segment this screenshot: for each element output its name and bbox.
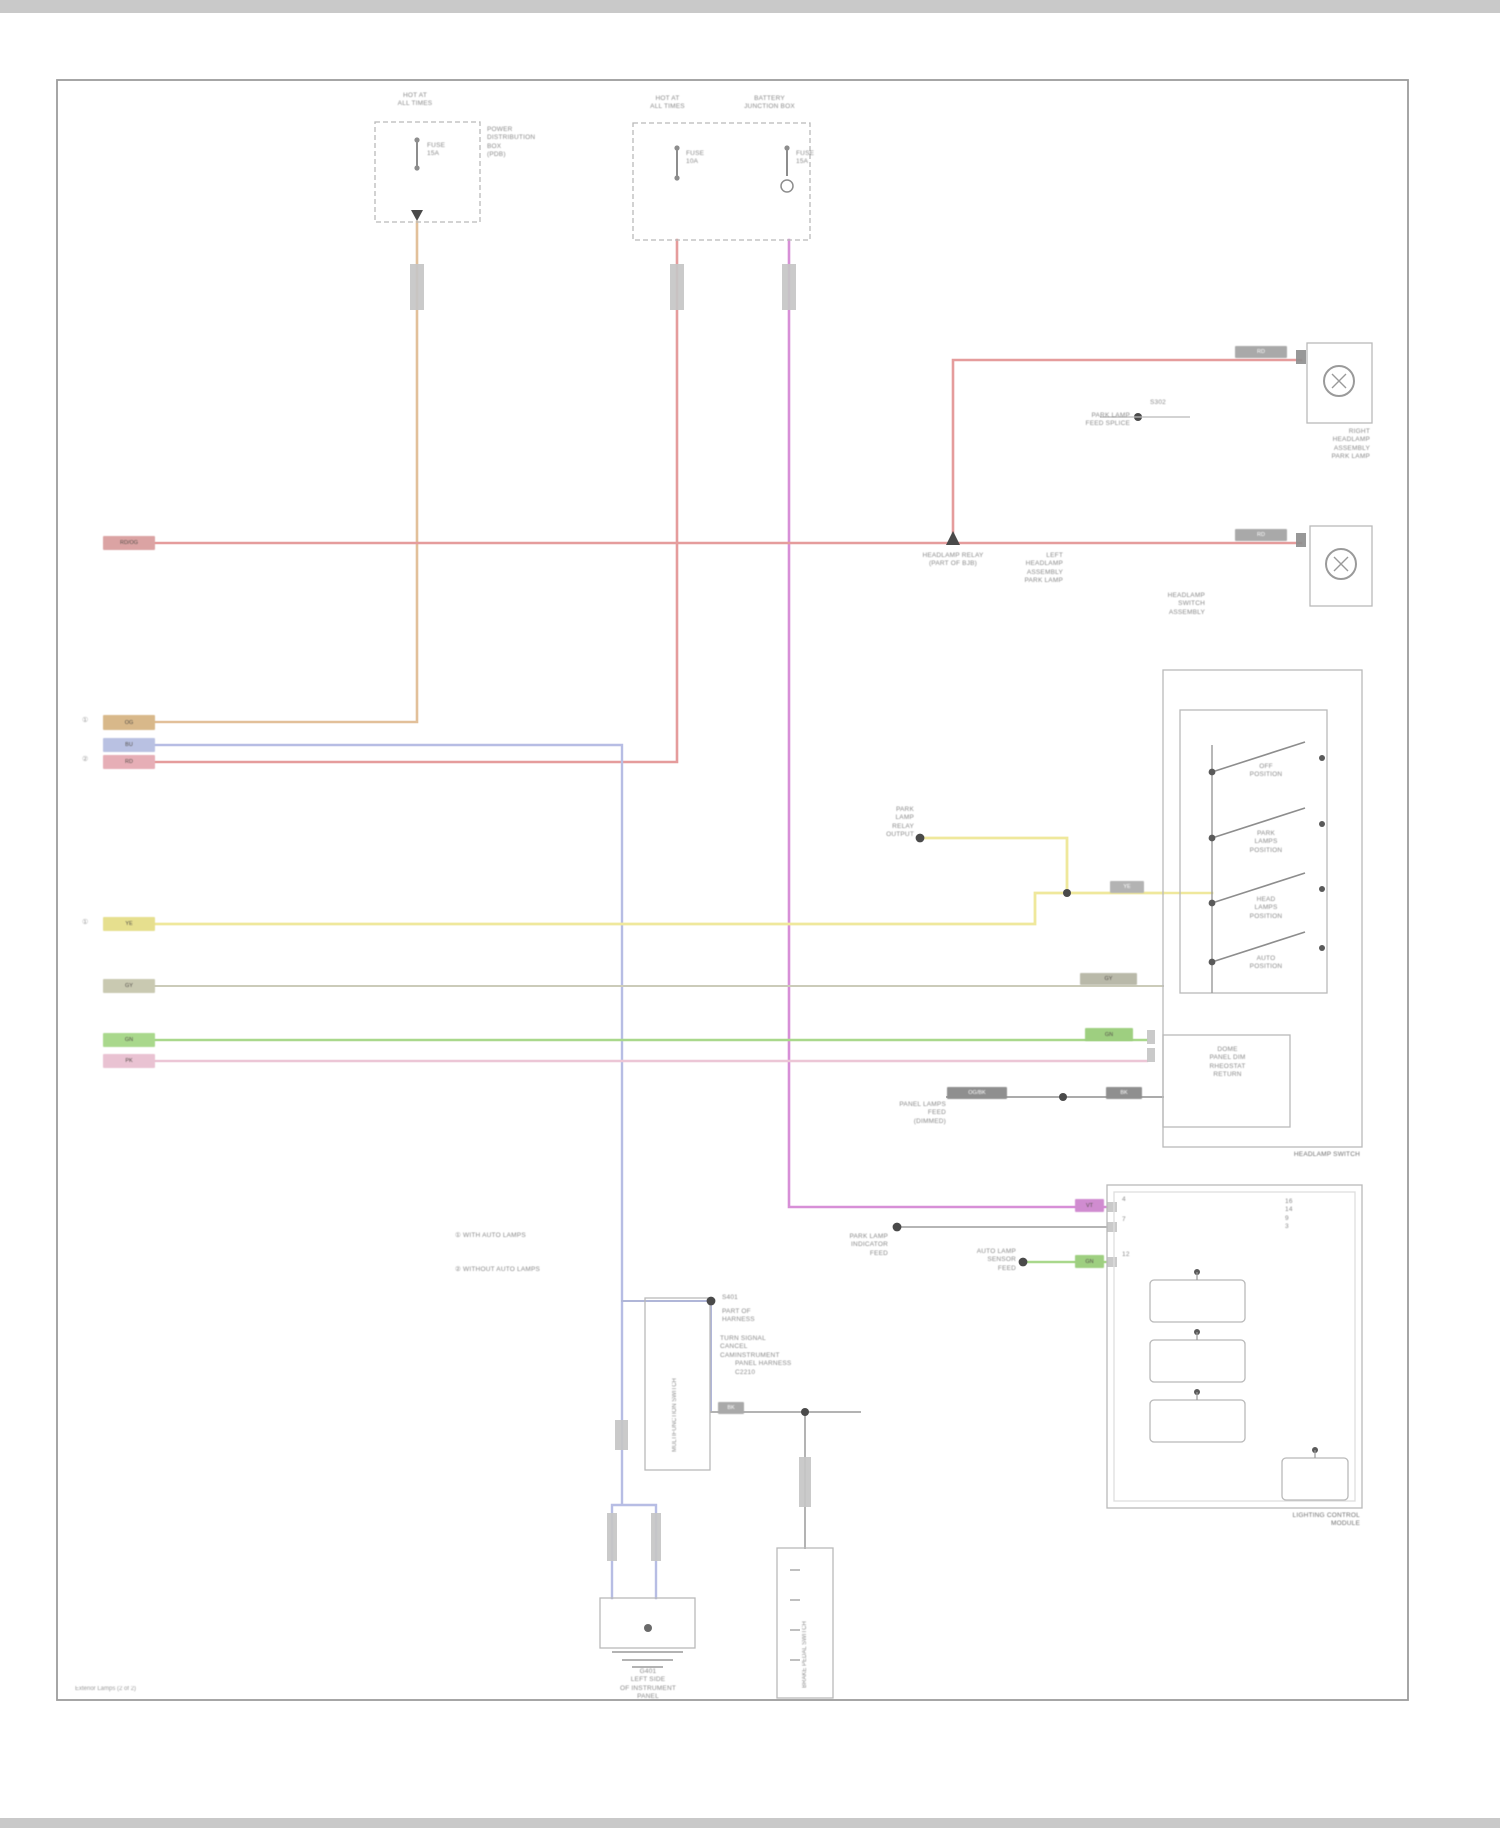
wire-label-rd-a: RD (1235, 346, 1287, 358)
sensor-callout: AUTO LAMP SENSOR FEED (928, 1248, 1016, 1273)
wire-label-ye-b: YE (1110, 881, 1144, 893)
module-cell-1 (1150, 1280, 1245, 1322)
ground-label: G401 LEFT SIDE OF INSTRUMENT PANEL (588, 1668, 708, 1702)
splice-s401-dot (707, 1297, 716, 1306)
indicator-dot (893, 1223, 902, 1232)
connector-red (670, 264, 684, 310)
fuse2-dot-top (674, 145, 679, 150)
pivot-1 (1209, 769, 1216, 776)
footnote-mark-3: ① (82, 918, 88, 926)
wire-label-red2: RD (103, 755, 155, 769)
yellow-wire (155, 838, 1163, 924)
module-dot-stubs (1197, 1272, 1315, 1458)
switch-pos2: PARK LAMPS POSITION (1226, 830, 1306, 855)
wire-label-green: GN (103, 1033, 155, 1047)
connector-pair-left (607, 1513, 617, 1561)
connector-orange (410, 264, 424, 310)
module-cell-3 (1150, 1400, 1245, 1442)
contact-3 (1319, 886, 1325, 892)
power-box-arrow (411, 210, 423, 221)
indicator-callout: PARK LAMP INDICATOR FEED (788, 1233, 888, 1258)
wire-label-gy-feed: GY (1080, 973, 1137, 985)
module-pin-b-label: 7 (1122, 1216, 1146, 1224)
lamp-right-box (1307, 343, 1372, 423)
power-box (375, 122, 480, 222)
diagram-frame (57, 80, 1408, 1700)
switch-pos3: HEAD LAMPS POSITION (1226, 896, 1306, 921)
contact-4 (1319, 945, 1325, 951)
module-dots (1194, 1269, 1318, 1453)
wire-label-gn-b: GN (1075, 1255, 1104, 1268)
module-pins-right: 16 14 9 3 (1285, 1198, 1345, 1232)
relay-arrow (946, 531, 960, 545)
connector-blue (615, 1420, 628, 1450)
connector-switch-b (1147, 1048, 1155, 1062)
ground-hatch-icon (612, 1652, 683, 1667)
sensor-dot (1019, 1258, 1028, 1267)
power-box-fuse: FUSE 15A (427, 142, 477, 159)
fuse2-dot-bottom (674, 175, 679, 180)
fuse1-dot-bottom (414, 165, 419, 170)
component-boxes (375, 122, 1372, 1698)
wire-label-gy-b: BK (1106, 1087, 1142, 1099)
blue-branch-wire (622, 1301, 711, 1412)
pivot-3 (1209, 900, 1216, 907)
lamp2-pin (1296, 533, 1306, 547)
splice-callout: PARK LAMP FEED SPLICE (1018, 412, 1130, 429)
fuse1-dot-top (414, 137, 419, 142)
wire-label-gray: GY (103, 979, 155, 993)
wire-label-blue: BU (103, 738, 155, 752)
splice2-text: PART OF HARNESS (722, 1308, 812, 1325)
fuse3-dot-top (784, 145, 789, 150)
module-pin-c (1107, 1257, 1117, 1267)
multifunction-vertical-label: MULTIFUNCTION SWITCH (672, 1378, 678, 1452)
wire-label-rd-b: RD (1235, 529, 1287, 541)
footnote-mark-1: ① (82, 716, 88, 724)
module-cell-4 (1282, 1458, 1348, 1500)
pedal-wire (711, 1412, 860, 1548)
blue-wire (155, 745, 656, 1598)
junction-fuse-b-label: FUSE 15A (796, 150, 846, 167)
splice2-tag: S401 (722, 1294, 767, 1302)
wire-label-bk: BK (718, 1402, 744, 1414)
dimmer-dot (1059, 1093, 1067, 1101)
module-box (1107, 1185, 1362, 1508)
contact-1 (1319, 755, 1325, 761)
pedal-switch-vertical-label: BRAKE PEDAL SWITCH (802, 1621, 808, 1688)
bulb-right-filament (1332, 374, 1346, 388)
pedal-junction-dot (801, 1408, 809, 1416)
wire-label-gn-feed: GN (1085, 1028, 1133, 1041)
diagram-footer: Exterior Lamps (2 of 2) (75, 1686, 136, 1692)
switch-sub-rows: DOME PANEL DIM RHEOSTAT RETURN (1180, 1046, 1275, 1080)
power-box-header: HOT AT ALL TIMES (355, 92, 475, 109)
junction-box-header-left: HOT AT ALL TIMES (625, 95, 710, 112)
switch-label: HEADLAMP SWITCH (1225, 1151, 1360, 1159)
bulb-left-filament (1334, 557, 1348, 571)
module-cell-2 (1150, 1340, 1245, 1382)
ground-box-dot (644, 1624, 652, 1632)
pivot-4 (1209, 959, 1216, 966)
junction-fuse-a-label: FUSE 10A (686, 150, 736, 167)
orange-wire (155, 222, 417, 722)
splice-tag: S302 (1150, 399, 1190, 407)
switch-pos4: AUTO POSITION (1226, 955, 1306, 972)
wire-label-yellow: YE (103, 917, 155, 931)
symbols (411, 137, 1356, 1667)
junction-box-header-right: BATTERY JUNCTION BOX (712, 95, 827, 112)
connector-pedal (799, 1457, 811, 1507)
lamp-left-box (1310, 526, 1372, 606)
yellow-callout: PARK LAMP RELAY OUTPUT (842, 806, 914, 840)
lamp-right-label: RIGHT HEADLAMP ASSEMBLY PARK LAMP (1245, 428, 1370, 462)
ground-box (600, 1598, 695, 1648)
wiring-diagram-page: RD/OG OG BU RD YE GY GN PK RD RD YE GY G… (0, 0, 1500, 1828)
panel-callout: PANEL LAMPS FEED (DIMMED) (858, 1101, 946, 1126)
connector-pair-right (651, 1513, 661, 1561)
connector-switch-a (1147, 1030, 1155, 1044)
inline-connectors (410, 264, 1306, 1561)
legend-item-1: ① WITH AUTO LAMPS (455, 1232, 595, 1240)
module-pin-a (1107, 1202, 1117, 1212)
contact-2 (1319, 821, 1325, 827)
wire-label-pink: PK (103, 1054, 155, 1068)
switch-dots (1209, 755, 1325, 965)
pivot-2 (1209, 835, 1216, 842)
lamp-left-label: LEFT HEADLAMP ASSEMBLY PARK LAMP (958, 552, 1063, 586)
switch-pos1: OFF POSITION (1226, 763, 1306, 780)
footnote-mark-2: ② (82, 755, 88, 763)
red-main-wire (105, 360, 1301, 543)
legend-item-2: ② WITHOUT AUTO LAMPS (455, 1266, 595, 1274)
wire-label-orange: OG (103, 715, 155, 730)
pedal-box-ticks (790, 1570, 800, 1660)
switch-header: HEADLAMP SWITCH ASSEMBLY (1095, 592, 1205, 617)
multifunction-side-label: TURN SIGNAL CANCEL CAM (720, 1335, 805, 1360)
wire-label-gy-a: OG/BK (947, 1087, 1007, 1099)
breaker-circle (781, 180, 793, 192)
module-pin-c-label: 12 (1122, 1251, 1146, 1259)
yellow-splice-dot (916, 834, 925, 843)
yellow-junction-dot (1063, 889, 1071, 897)
module-pin-b (1107, 1222, 1117, 1232)
wire-label-vt: VT (1075, 1199, 1104, 1212)
module-label: LIGHTING CONTROL MODULE (1228, 1512, 1360, 1529)
connector-magenta (782, 264, 796, 310)
module-pin-a-label: 4 (1122, 1196, 1146, 1204)
lamp1-pin (1296, 350, 1306, 364)
power-box-name: POWER DISTRIBUTION BOX (PDB) (487, 126, 577, 160)
wire-label-red-main: RD/OG (103, 536, 155, 550)
